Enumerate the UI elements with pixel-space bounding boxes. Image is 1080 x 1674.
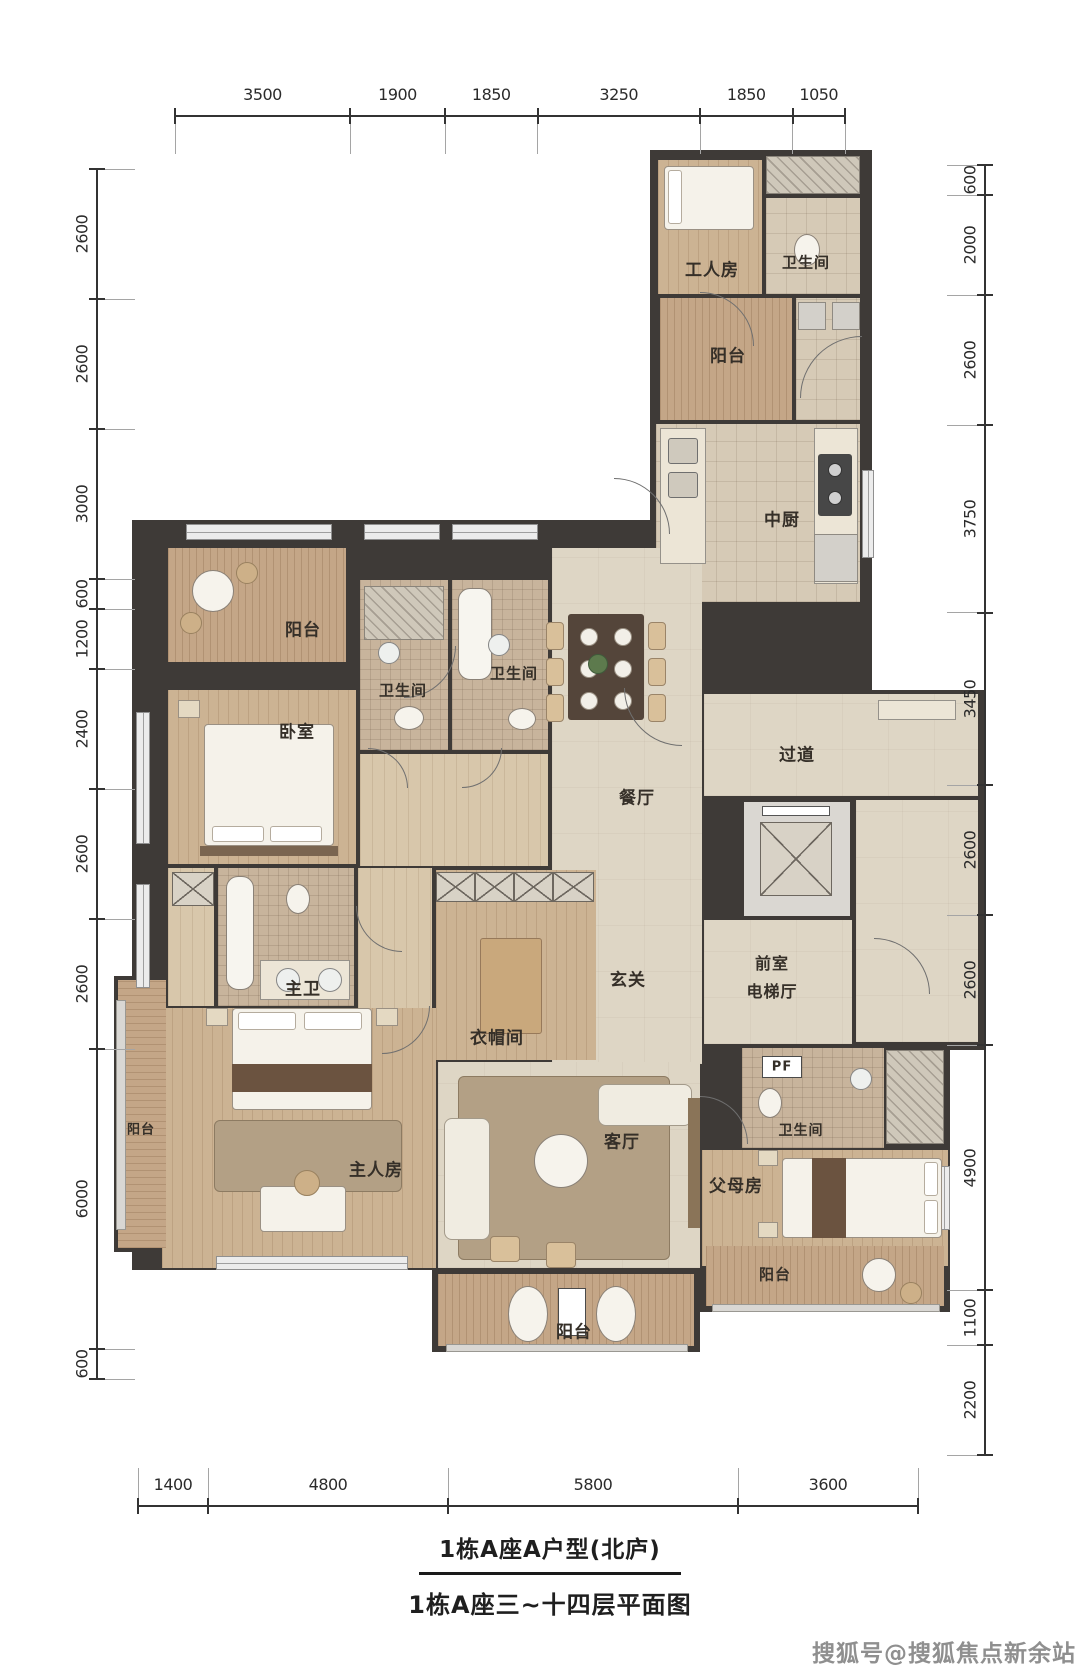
shower-hatch (886, 1050, 944, 1144)
dim-tick (89, 668, 105, 670)
dim-label-right: 2600 (961, 831, 980, 870)
room-label-guodao: 过道 (779, 741, 815, 766)
dim-tick (174, 108, 176, 124)
dim-tick (977, 1044, 993, 1046)
dim-label-top: 3250 (599, 85, 638, 104)
planter (596, 1286, 636, 1342)
window (136, 884, 150, 988)
armchair (490, 1236, 520, 1262)
dim-tick (977, 1289, 993, 1291)
nightstand (758, 1150, 778, 1166)
nightstand (758, 1222, 778, 1238)
dim-extension (105, 579, 135, 580)
dim-extension (105, 299, 135, 300)
dim-tick (447, 1498, 449, 1514)
room-label-pf: PF (772, 1060, 792, 1075)
dim-tick (977, 784, 993, 786)
dim-tick (977, 1344, 993, 1346)
dim-label-right: 600 (961, 165, 980, 194)
dim-extension (947, 1290, 977, 1291)
balcony-railing (446, 1344, 688, 1352)
room-floor-yangtai-zuoshang (168, 548, 346, 662)
pillow (238, 1012, 296, 1030)
watermark: 搜狐号@搜狐焦点新余站 (812, 1634, 1076, 1668)
room-label-yangtai-youxia: 阳台 (759, 1264, 791, 1285)
bed-throw (812, 1158, 846, 1238)
dim-extension (537, 124, 538, 154)
dim-tick (737, 1498, 739, 1514)
room-label-qianshi: 前室 (755, 950, 789, 974)
balcony-chair (900, 1282, 922, 1304)
room-label-gongrenfang: 工人房 (685, 256, 739, 281)
armchair (546, 1242, 576, 1268)
closet-island (480, 938, 542, 1034)
dim-label-left: 3000 (73, 485, 92, 524)
dim-tick (89, 428, 105, 430)
dim-tick (977, 914, 993, 916)
room-label-canting: 餐厅 (619, 784, 655, 809)
plan-title: 1栋A座A户型(北庐) (330, 1530, 770, 1564)
dim-extension (175, 124, 176, 154)
dim-label-top: 3500 (243, 85, 282, 104)
balcony-table (862, 1258, 896, 1292)
coffee-table (534, 1134, 588, 1188)
dim-label-right: 2600 (961, 961, 980, 1000)
dim-extension (105, 1349, 135, 1350)
basin (318, 968, 342, 992)
dim-tick (89, 788, 105, 790)
dim-line-top (175, 115, 845, 117)
dim-tick (349, 108, 351, 124)
plan-subtitle: 1栋A座三~十四层平面图 (330, 1585, 770, 1620)
nightstand (206, 1008, 228, 1026)
centerpiece (588, 654, 608, 674)
dim-label-bottom: 1400 (154, 1475, 193, 1494)
pillow (270, 826, 322, 842)
room-label-woshi: 卧室 (279, 718, 315, 743)
vent-shaft-hatch (766, 156, 860, 194)
dim-label-left: 2600 (73, 835, 92, 874)
dim-label-bottom: 4800 (309, 1475, 348, 1494)
room-label-xuanguan: 玄关 (610, 966, 646, 991)
dim-line-bottom (138, 1505, 918, 1507)
dim-extension (792, 124, 793, 154)
dim-label-top: 1900 (378, 85, 417, 104)
washer (798, 302, 826, 330)
bed-throw (232, 1064, 372, 1092)
dim-tick (977, 1454, 993, 1456)
dim-tick (699, 108, 701, 124)
dim-label-left: 6000 (73, 1180, 92, 1219)
dim-label-right: 1100 (961, 1298, 980, 1337)
room-label-yangtai-zuoshang: 阳台 (285, 616, 321, 641)
pillow (924, 1200, 938, 1234)
dim-line-left (96, 169, 98, 1379)
dim-extension (947, 1345, 977, 1346)
dim-extension (105, 1379, 135, 1380)
fridge (814, 534, 858, 582)
dim-extension (918, 1468, 919, 1498)
window (136, 712, 150, 844)
dim-label-top: 1850 (472, 85, 511, 104)
dim-label-bottom: 3600 (809, 1475, 848, 1494)
washer (832, 302, 860, 330)
dim-tick (89, 298, 105, 300)
dim-extension (105, 789, 135, 790)
dim-label-left: 600 (73, 1349, 92, 1378)
wardrobe-cell (553, 872, 594, 902)
pillow (668, 170, 682, 224)
balcony-chair (236, 562, 258, 584)
dim-extension (738, 1468, 739, 1498)
room-label-zhuwei: 主卫 (285, 975, 321, 1000)
window (452, 524, 538, 540)
pillow (924, 1162, 938, 1196)
dim-tick (977, 612, 993, 614)
wardrobe-cell (514, 872, 553, 902)
dim-tick (977, 294, 993, 296)
plate (580, 628, 598, 646)
dim-extension (105, 609, 135, 610)
dim-tick (207, 1498, 209, 1514)
dim-tick (844, 108, 846, 124)
dim-label-right: 4900 (961, 1148, 980, 1187)
dim-extension (947, 295, 977, 296)
dim-extension (105, 919, 135, 920)
room-label-keting: 客厅 (604, 1128, 640, 1153)
dim-label-left: 2400 (73, 710, 92, 749)
window (364, 524, 440, 540)
dim-extension (105, 169, 135, 170)
planter (508, 1286, 548, 1342)
dim-label-left: 2600 (73, 965, 92, 1004)
window (862, 470, 874, 558)
plate (614, 660, 632, 678)
floorplan-canvas: 工人房卫生间阳台中厨阳台卧室卫生间卫生间餐厅过道主卫衣帽间玄关前室电梯厅阳台主人… (0, 0, 1080, 1674)
dining-chair (648, 622, 666, 650)
dim-extension (947, 1045, 977, 1046)
bathtub (226, 876, 254, 990)
toilet (286, 884, 310, 914)
dim-label-left: 600 (73, 579, 92, 608)
window (216, 1256, 408, 1270)
dim-label-bottom: 5800 (574, 1475, 613, 1494)
shower-hatch (364, 586, 444, 640)
dim-extension (947, 785, 977, 786)
basin (378, 642, 400, 664)
room-label-weishengjian-1: 卫生间 (379, 680, 427, 701)
wardrobe-cell (172, 872, 214, 906)
dim-label-right: 2600 (961, 341, 980, 380)
dim-label-right: 2200 (961, 1381, 980, 1420)
dim-tick (792, 108, 794, 124)
pillow (212, 826, 264, 842)
room-label-zhurenfang: 主人房 (349, 1156, 403, 1181)
sofa (444, 1118, 490, 1240)
dim-extension (845, 124, 846, 154)
dim-label-left: 1200 (73, 620, 92, 659)
room-label-weishengjian-2: 卫生间 (490, 663, 538, 684)
dim-extension (445, 124, 446, 154)
dim-label-right: 2000 (961, 226, 980, 265)
dim-extension (350, 124, 351, 154)
wardrobe-cell (475, 872, 514, 902)
bathtub (458, 588, 492, 680)
balcony-table (192, 570, 234, 612)
dim-label-top: 1050 (799, 85, 838, 104)
dim-tick (444, 108, 446, 124)
dim-tick (137, 1498, 139, 1514)
dim-extension (105, 429, 135, 430)
room-label-zhongchu: 中厨 (764, 506, 800, 531)
dining-chair (546, 658, 564, 686)
balcony-railing (116, 1000, 126, 1230)
dim-extension (947, 425, 977, 426)
pillow (304, 1012, 362, 1030)
room-label-yangtai-fuwu: 阳台 (710, 342, 746, 367)
headboard (200, 846, 338, 856)
dim-extension (700, 124, 701, 154)
basin (850, 1068, 872, 1090)
room-label-yangtai-zuo: 阳台 (127, 1119, 155, 1138)
sofa (598, 1084, 692, 1126)
balcony-railing (712, 1304, 940, 1312)
plate (580, 692, 598, 710)
burner (828, 463, 842, 477)
dim-label-right: 3450 (961, 679, 980, 718)
title-divider (419, 1572, 681, 1575)
room-label-diantiting: 电梯厅 (746, 978, 797, 1002)
dim-tick (89, 168, 105, 170)
kitchen-sink (668, 438, 698, 464)
basin (488, 634, 510, 656)
burner (828, 491, 842, 505)
room-label-weishengjian-fuwu: 卫生间 (782, 252, 830, 273)
dim-tick (917, 1498, 919, 1514)
dim-label-top: 1850 (727, 85, 766, 104)
balcony-chair (180, 612, 202, 634)
dining-chair (546, 622, 564, 650)
dim-tick (89, 1048, 105, 1050)
room-label-fumufang: 父母房 (709, 1172, 763, 1197)
dim-extension (105, 669, 135, 670)
dim-extension (947, 195, 977, 196)
dim-extension (138, 1468, 139, 1498)
room-label-yangtai-xia: 阳台 (556, 1318, 592, 1343)
dim-line-right (984, 165, 986, 1455)
kitchen-sink (668, 472, 698, 498)
dim-label-left: 2600 (73, 345, 92, 384)
dim-extension (208, 1468, 209, 1498)
console-table (878, 700, 956, 720)
plate (614, 628, 632, 646)
dim-extension (947, 1455, 977, 1456)
dim-extension (947, 612, 977, 613)
title-block: 1栋A座A户型(北庐) 1栋A座三~十四层平面图 (330, 1530, 770, 1620)
dim-extension (947, 915, 977, 916)
window (186, 524, 332, 540)
dim-tick (89, 918, 105, 920)
room-label-weishengjian-fumu: 卫生间 (779, 1120, 824, 1140)
dining-chair (648, 658, 666, 686)
toilet (394, 706, 424, 730)
dim-label-left: 2600 (73, 215, 92, 254)
wardrobe-cell (436, 872, 475, 902)
room-label-yimaojian: 衣帽间 (470, 1024, 524, 1049)
media-wall (688, 1098, 700, 1228)
dim-tick (537, 108, 539, 124)
elevator-door (762, 806, 830, 816)
dim-extension (105, 1049, 135, 1050)
dim-label-right: 3750 (961, 499, 980, 538)
parents-bed (782, 1158, 942, 1238)
elevator-car (760, 822, 832, 896)
nightstand (178, 700, 200, 718)
toilet (508, 708, 536, 730)
toilet (758, 1088, 782, 1118)
dining-chair (546, 694, 564, 722)
desk-chair (294, 1170, 320, 1196)
dim-tick (977, 424, 993, 426)
dim-extension (448, 1468, 449, 1498)
